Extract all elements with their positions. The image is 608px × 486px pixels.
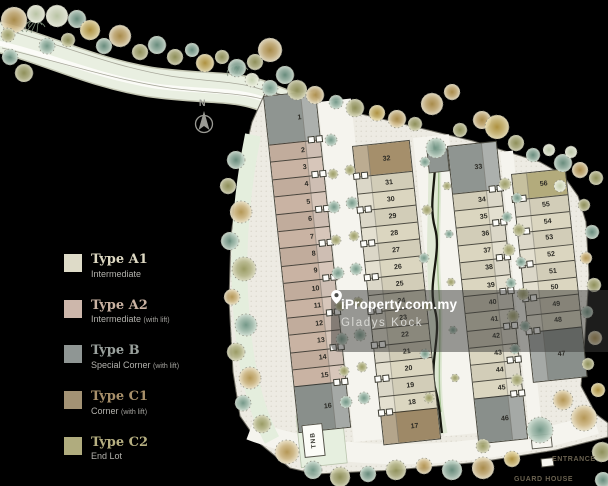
unit-number: 28 (362, 227, 418, 240)
site-plan: 1234567891011121314151632313029282726252… (0, 0, 608, 486)
legend-swatch (64, 300, 82, 318)
legend-type-label: Type A2 (91, 299, 170, 313)
legend-swatch (64, 391, 82, 409)
unit-cell: 46 (475, 394, 527, 444)
legend-type-desc: Corner (with lift) (91, 406, 148, 416)
legend-item: Type C1Corner (with lift) (64, 390, 179, 416)
legend-swatch (64, 345, 82, 363)
location-pin-icon (331, 290, 342, 304)
unit-number: 38 (461, 263, 509, 275)
unit-number: 46 (477, 413, 525, 425)
legend-type-label: Type A1 (91, 253, 148, 267)
unit-number: 44 (472, 365, 520, 377)
legend-type-desc: Intermediate (with lift) (91, 314, 170, 324)
unit-number: 4 (273, 180, 324, 192)
unit-number: 6 (277, 214, 328, 226)
car-porch-squares (311, 170, 327, 179)
legend-type-desc: Special Corner (with lift) (91, 360, 179, 370)
unit-number: 1 (266, 112, 317, 124)
legend-type-desc: End Lot (91, 451, 148, 461)
unit-number: 30 (359, 193, 415, 206)
legend-type-label: Type C2 (91, 436, 148, 450)
watermark-agent: Gladys Kock (341, 317, 608, 329)
unit-number: 20 (376, 362, 432, 375)
entrance-label: ENTRANCE (552, 456, 596, 463)
car-porch-squares (496, 253, 512, 262)
unit-number: 32 (354, 152, 410, 165)
legend: Type A1IntermediateType A2Intermediate (… (64, 253, 179, 461)
legend-item: Type A1Intermediate (64, 253, 179, 279)
unit-number: 14 (292, 352, 343, 364)
legend-swatch (64, 437, 82, 455)
unit-number: 10 (284, 283, 335, 295)
tnb-label: TNB (309, 432, 318, 449)
legend-type-desc: Intermediate (91, 269, 148, 279)
car-porch-squares (492, 219, 508, 228)
car-porch-squares (315, 204, 331, 213)
unit-number: 8 (281, 249, 332, 261)
north-label: N (199, 98, 206, 108)
unit-number: 56 (513, 178, 566, 191)
watermark: iProperty.com.my Gladys Kock (331, 290, 608, 352)
legend-type-label: Type C1 (91, 390, 148, 404)
unit-number: 2 (270, 145, 321, 157)
unit-number: 18 (380, 396, 436, 409)
legend-swatch (64, 254, 82, 272)
tnb-substation: TNB (301, 423, 325, 458)
unit-number: 16 (297, 401, 348, 413)
watermark-brand-text: iProperty.com.my (341, 297, 457, 312)
car-porch-squares (307, 135, 323, 144)
legend-item: Type A2Intermediate (with lift) (64, 299, 179, 325)
car-porch-squares (322, 273, 338, 282)
legend-type-label: Type B (91, 344, 179, 358)
unit-number: 26 (366, 261, 422, 274)
car-porch-squares (506, 355, 522, 364)
car-porch-squares (318, 239, 334, 248)
unit-number: 54 (517, 216, 570, 229)
watermark-brand: iProperty.com.my (341, 297, 608, 312)
car-porch-squares (488, 184, 504, 193)
guard-house-label: GUARD HOUSE (514, 476, 573, 483)
car-porch-squares (333, 377, 349, 386)
row-1: 12345678910111213141516 (263, 90, 351, 433)
legend-item: Type C2End Lot (64, 436, 179, 462)
car-porch-squares (510, 390, 526, 399)
unit-number: 33 (450, 162, 498, 174)
unit-number: 17 (382, 420, 438, 433)
unit-number: 52 (520, 249, 573, 262)
unit-number: 34 (454, 194, 502, 206)
legend-item: Type BSpecial Corner (with lift) (64, 344, 179, 370)
unit-number: 36 (457, 228, 505, 240)
